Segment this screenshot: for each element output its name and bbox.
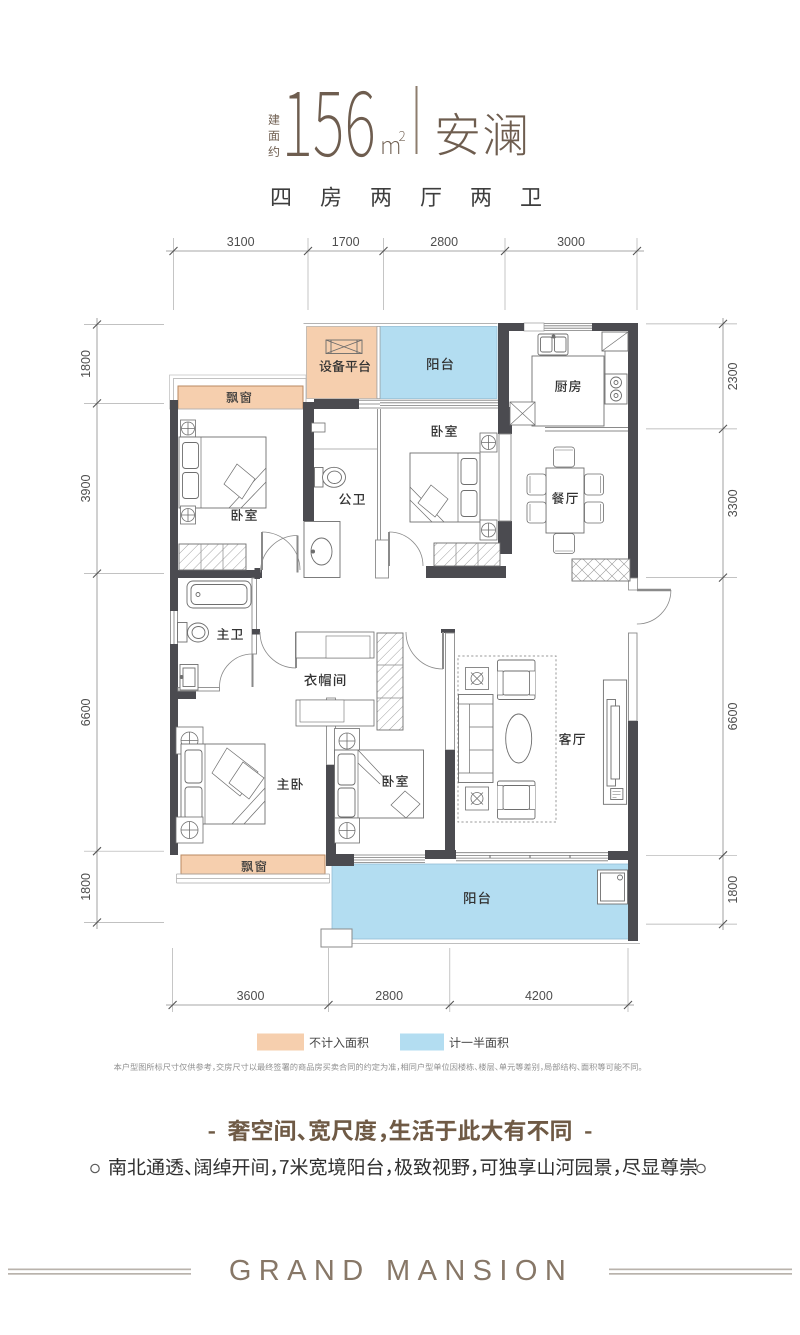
svg-text:3600: 3600 [237,989,265,1003]
svg-text:GRAND MANSION: GRAND MANSION [229,1255,573,1287]
svg-text:1700: 1700 [332,235,360,249]
svg-text:3300: 3300 [726,489,740,517]
svg-text:1800: 1800 [79,350,93,378]
svg-text:2800: 2800 [430,235,458,249]
svg-text:6600: 6600 [726,703,740,731]
svg-text:1800: 1800 [726,876,740,904]
svg-text:2800: 2800 [375,989,403,1003]
svg-text:3900: 3900 [79,475,93,503]
svg-text:4200: 4200 [525,989,553,1003]
svg-text:6600: 6600 [79,698,93,726]
svg-text:3000: 3000 [557,235,585,249]
svg-text:3100: 3100 [227,235,255,249]
svg-text:1800: 1800 [79,873,93,901]
svg-text:2300: 2300 [726,362,740,390]
